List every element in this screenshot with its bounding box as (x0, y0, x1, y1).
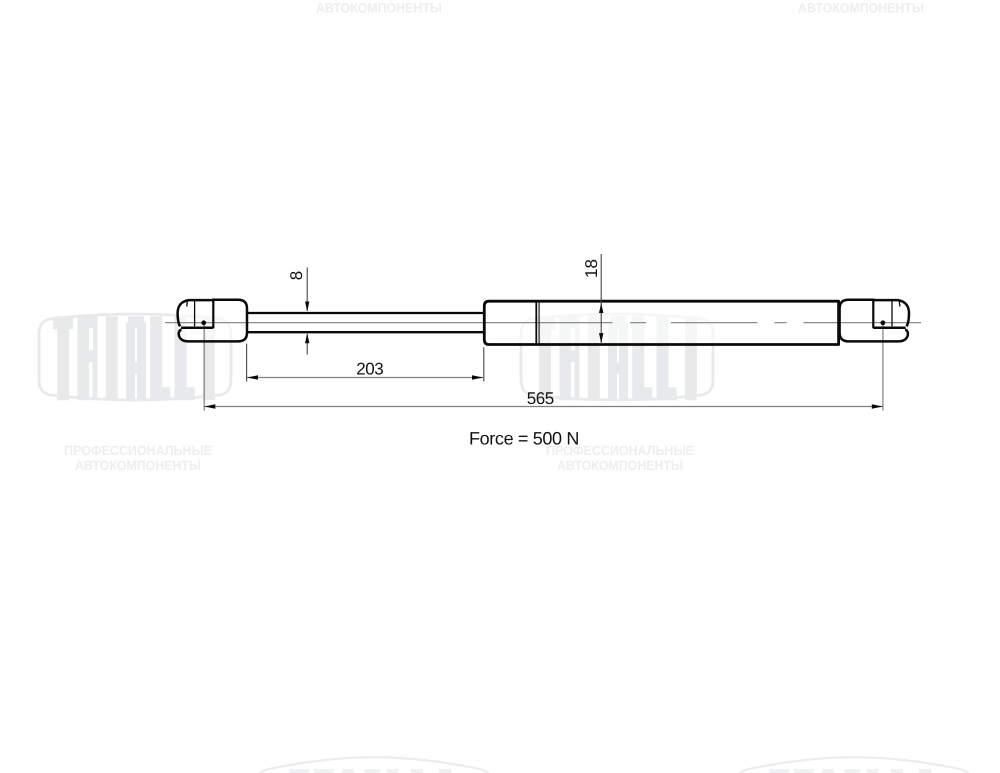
svg-text:АВТОКОМПОНЕНТЫ: АВТОКОМПОНЕНТЫ (798, 0, 924, 15)
svg-text:АВТОКОМПОНЕНТЫ: АВТОКОМПОНЕНТЫ (316, 0, 442, 15)
svg-text:8: 8 (287, 271, 306, 280)
svg-text:203: 203 (356, 359, 383, 378)
svg-text:565: 565 (527, 389, 554, 408)
svg-text:Force = 500 N: Force = 500 N (469, 428, 579, 448)
svg-text:18: 18 (582, 259, 601, 278)
